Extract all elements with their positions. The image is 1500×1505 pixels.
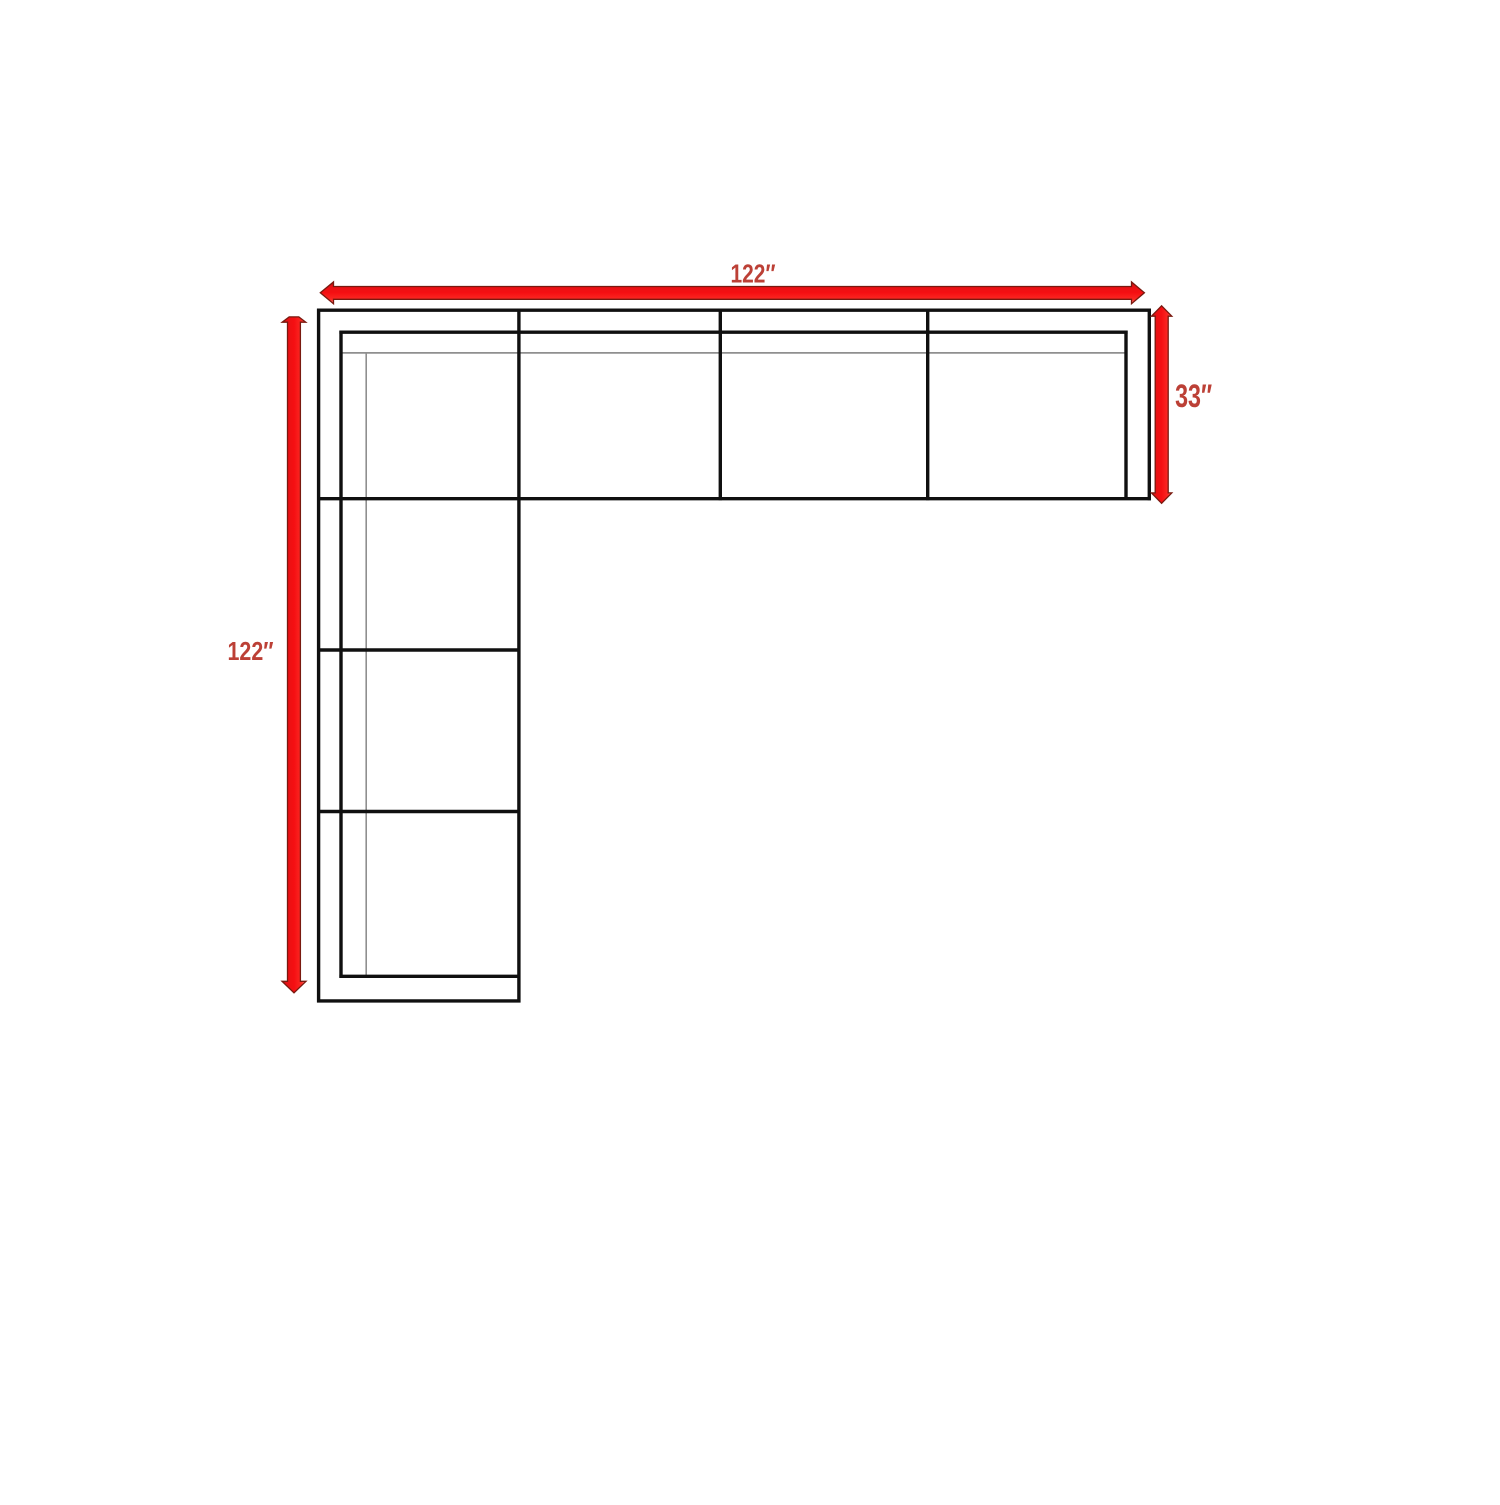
svg-text:33″: 33″	[1175, 378, 1212, 414]
svg-text:122″: 122″	[731, 259, 776, 289]
svg-text:122″: 122″	[228, 636, 274, 666]
